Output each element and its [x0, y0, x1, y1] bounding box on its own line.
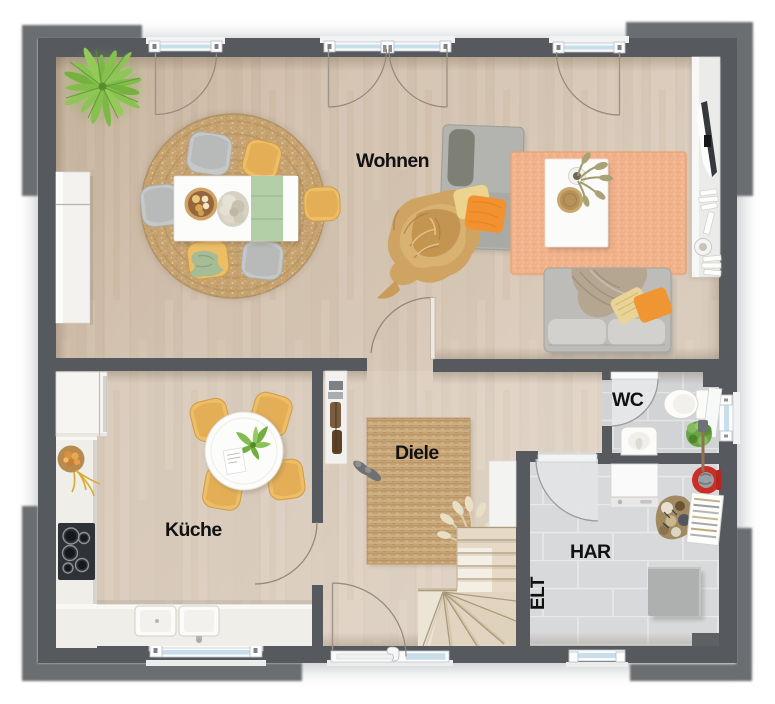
svg-text:Diele: Diele: [395, 442, 439, 464]
svg-text:HAR: HAR: [570, 541, 611, 563]
svg-text:Küche: Küche: [165, 519, 222, 541]
svg-text:ELT: ELT: [528, 576, 549, 610]
svg-text:WC: WC: [612, 389, 644, 411]
svg-text:Wohnen: Wohnen: [356, 150, 429, 172]
